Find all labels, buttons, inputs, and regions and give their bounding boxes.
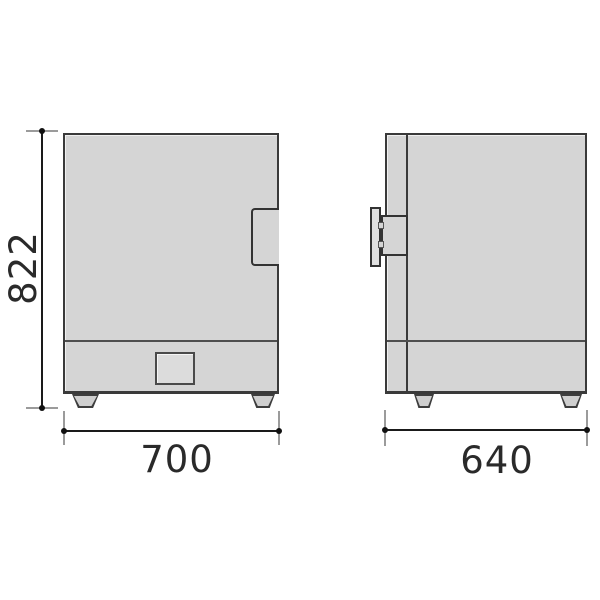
dim-width-dot-left xyxy=(61,428,67,434)
side-handle-mount-bottom xyxy=(378,241,384,248)
side-handle-mount-top xyxy=(378,222,384,229)
dim-width-label: 700 xyxy=(132,440,222,480)
dim-height-dot-bottom xyxy=(39,405,45,411)
side-handle-bar xyxy=(370,207,381,267)
dim-width-line xyxy=(63,430,280,432)
side-foot-right xyxy=(560,394,582,408)
side-handle-bracket xyxy=(381,215,408,256)
dim-depth-line xyxy=(384,429,588,431)
front-foot-left xyxy=(72,394,99,408)
front-foot-right xyxy=(251,394,275,408)
dim-width-dot-right xyxy=(276,428,282,434)
dimensional-drawing: 822 700 640 xyxy=(0,0,600,600)
side-panel-divider xyxy=(387,340,585,342)
front-display-window xyxy=(155,352,195,385)
dim-height-dot-top xyxy=(39,128,45,134)
side-foot-left xyxy=(414,394,434,408)
dim-depth-dot-right xyxy=(584,427,590,433)
dim-depth-dot-left xyxy=(382,427,388,433)
side-door-edge-line xyxy=(406,135,408,392)
dim-depth-label: 640 xyxy=(452,441,542,481)
side-body xyxy=(385,133,587,394)
front-panel-divider xyxy=(65,340,277,342)
front-door-handle xyxy=(251,208,279,266)
dim-height-label: 822 xyxy=(4,223,44,313)
